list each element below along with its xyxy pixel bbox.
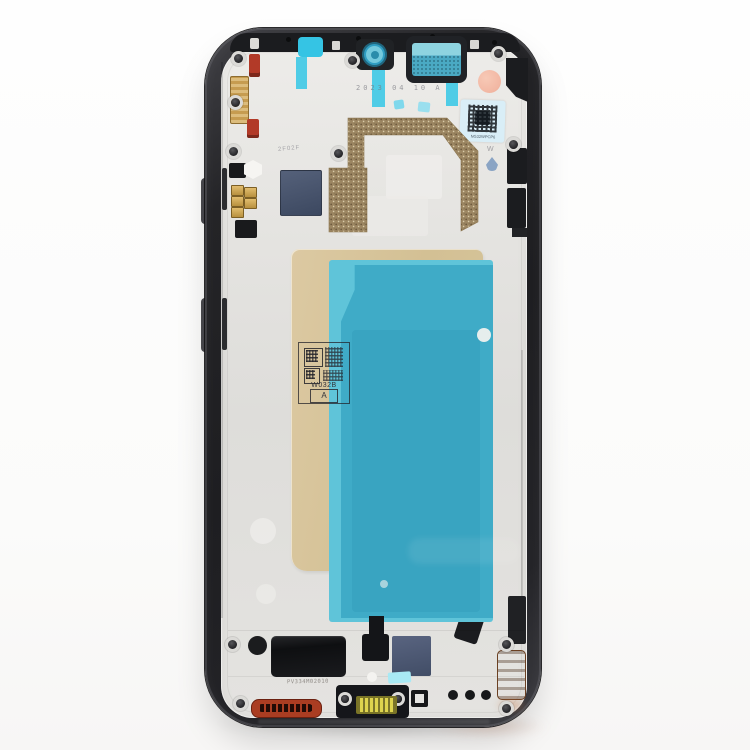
bottom-dot-3 (481, 690, 491, 700)
frame-bottom-reflection (258, 719, 490, 724)
gold-contact-4 (244, 187, 257, 198)
screw-6 (494, 49, 503, 58)
screw-11 (502, 704, 511, 713)
right-edge-notch-2 (507, 148, 527, 184)
grille-slot (258, 704, 313, 712)
plate-dot-1 (250, 518, 276, 544)
black-hook-upper (229, 163, 246, 178)
wm-stamp: W (487, 146, 494, 153)
product-photo-canvas: NG32WPCP6 2023 04 10 A 2F02F W (0, 0, 750, 750)
front-camera-aperture (371, 51, 379, 59)
qa-grade-text: A (311, 391, 337, 400)
screw-2 (231, 98, 240, 107)
gold-contact-1 (231, 185, 244, 196)
left-edge-clip-1 (222, 168, 227, 210)
cyan-strip-1 (296, 57, 307, 89)
right-edge-notch-3 (507, 188, 526, 228)
screw-5 (348, 56, 357, 65)
qa-code-text: W032B (299, 382, 349, 389)
loudspeaker-grille (251, 699, 322, 718)
screw-9 (236, 699, 245, 708)
screw-4 (334, 149, 343, 158)
cyan-tape-small (388, 671, 412, 684)
right-edge-notch-5 (508, 596, 526, 644)
date-stamp: 2023 04 10 A (356, 84, 496, 92)
bottom-dot-2 (465, 690, 475, 700)
top-band-tab-4 (470, 40, 479, 49)
film-hole-dot (477, 328, 491, 342)
screw-3 (229, 147, 238, 156)
top-band-tab-1 (250, 38, 259, 49)
screw-1 (234, 54, 243, 63)
square-port (411, 690, 428, 707)
bronze-antenna-trace (320, 108, 490, 238)
qa-hanzi-2 (323, 370, 343, 381)
qa-grade-box: A (310, 389, 338, 403)
film-sheen (408, 538, 520, 564)
screw-8 (228, 640, 237, 649)
plate-dot-2 (256, 584, 276, 604)
top-band-rivet-1 (286, 37, 291, 42)
qa-hanzi-1 (325, 347, 343, 367)
mic-hole (248, 636, 267, 655)
yellow-connector (356, 696, 397, 714)
black-hook-lower (235, 220, 257, 238)
right-edge-groove (521, 350, 523, 620)
red-clip-2 (247, 119, 259, 138)
bracket-boss-left (341, 695, 349, 703)
gold-contact-5 (244, 198, 257, 209)
screw-7 (509, 140, 518, 149)
top-band-tab-3 (332, 41, 340, 50)
gold-contact-3 (231, 207, 244, 218)
screw-10 (502, 640, 511, 649)
red-clip-1 (249, 54, 260, 77)
slate-module-lower (392, 636, 431, 676)
teal-film-inner (352, 330, 480, 612)
film-dot-small (380, 580, 388, 588)
cyan-tape-top (298, 37, 323, 57)
copper-contact (497, 650, 526, 700)
qa-mini-qr-1 (304, 348, 323, 367)
copper-glow (494, 696, 528, 714)
gold-contact-2 (231, 196, 244, 207)
earpiece-mesh (412, 43, 461, 76)
qa-stamp-box: W032B A (298, 342, 350, 404)
left-edge-clip-2 (222, 298, 227, 350)
slate-module-upper (280, 170, 322, 216)
bottom-white-dot (367, 672, 377, 682)
top-band-rivet-4 (492, 40, 497, 45)
black-module-bottom-left (271, 636, 346, 677)
bottom-dot-1 (448, 690, 458, 700)
chimney-base (362, 634, 389, 661)
right-edge-notch-4 (512, 228, 527, 237)
bottom-stamp: PV334M02010 (287, 679, 329, 686)
